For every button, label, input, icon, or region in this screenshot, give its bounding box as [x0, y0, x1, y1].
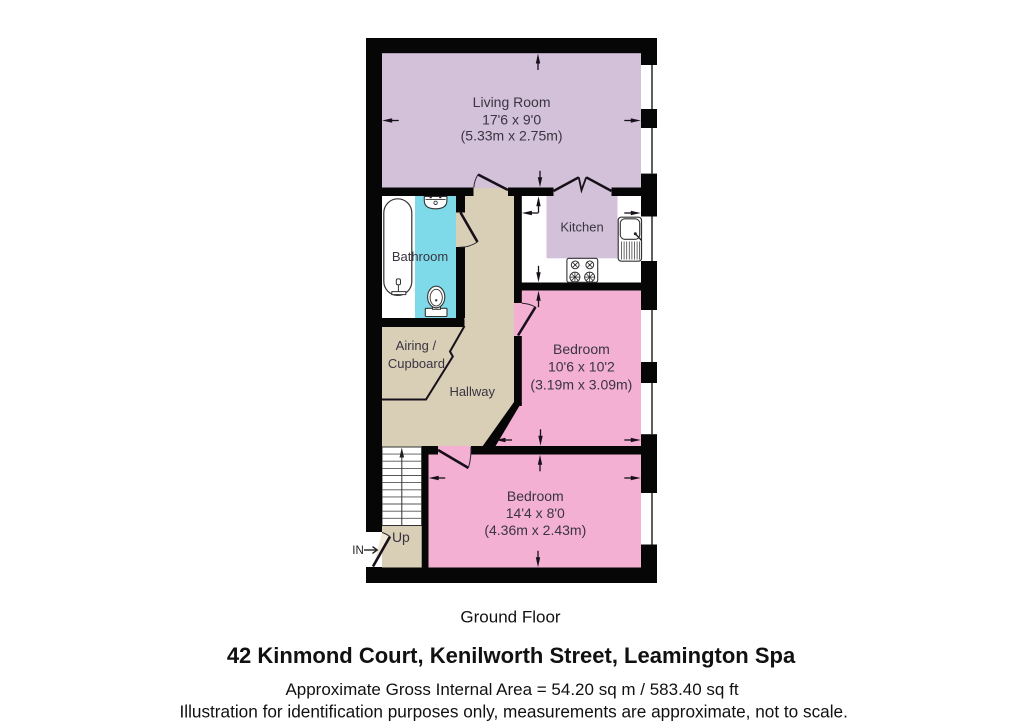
svg-text:10'6 x 10'2: 10'6 x 10'2	[548, 359, 615, 375]
svg-text:(3.19m x 3.09m): (3.19m x 3.09m)	[530, 377, 632, 393]
svg-text:Kitchen: Kitchen	[560, 220, 603, 235]
svg-text:Airing /: Airing /	[396, 338, 437, 353]
svg-text:Approximate Gross Internal Are: Approximate Gross Internal Area = 54.20 …	[285, 680, 738, 699]
svg-text:Illustration for identificatio: Illustration for identification purposes…	[179, 702, 847, 722]
svg-text:42 Kinmond Court, Kenilworth S: 42 Kinmond Court, Kenilworth Street, Lea…	[227, 643, 796, 668]
svg-text:Ground Floor: Ground Floor	[460, 608, 560, 627]
svg-text:Cupboard: Cupboard	[388, 356, 445, 371]
svg-text:Hallway: Hallway	[449, 384, 495, 399]
svg-text:Living Room: Living Room	[473, 94, 551, 110]
svg-text:Bedroom: Bedroom	[507, 488, 564, 504]
svg-text:14'4 x 8'0: 14'4 x 8'0	[506, 505, 565, 521]
svg-text:Bedroom: Bedroom	[553, 341, 610, 357]
svg-text:(4.36m x 2.43m): (4.36m x 2.43m)	[484, 522, 586, 538]
svg-text:17'6 x 9'0: 17'6 x 9'0	[482, 112, 541, 128]
svg-text:(5.33m x 2.75m): (5.33m x 2.75m)	[461, 128, 563, 144]
svg-text:IN: IN	[352, 545, 364, 557]
svg-text:Up: Up	[392, 529, 410, 545]
svg-text:Bathroom: Bathroom	[392, 249, 448, 264]
